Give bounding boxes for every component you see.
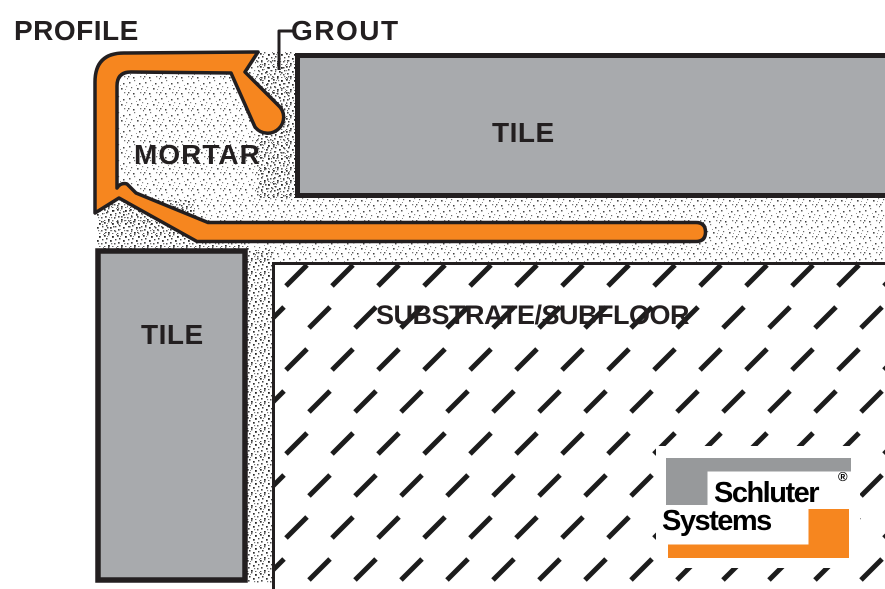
- label-tile-left: TILE: [141, 321, 204, 349]
- label-mortar: MORTAR: [134, 141, 261, 169]
- logo-brand-line1: Schluter: [714, 479, 818, 508]
- top-tile: [298, 56, 885, 196]
- label-grout: GROUT: [291, 17, 400, 45]
- logo-registered-mark: ®: [838, 470, 848, 483]
- installation-cross-section-diagram: PROFILE GROUT MORTAR TILE TILE SUBSTRATE…: [0, 0, 885, 589]
- logo-brand-line2: Systems: [662, 507, 771, 536]
- left-tile: [98, 251, 245, 580]
- mortar-joint-behind-left-tile: [246, 250, 272, 583]
- label-substrate-subfloor: SUBSTRATE/SUBFLOOR: [376, 302, 689, 329]
- label-profile: PROFILE: [14, 17, 139, 45]
- label-tile-top: TILE: [492, 119, 555, 147]
